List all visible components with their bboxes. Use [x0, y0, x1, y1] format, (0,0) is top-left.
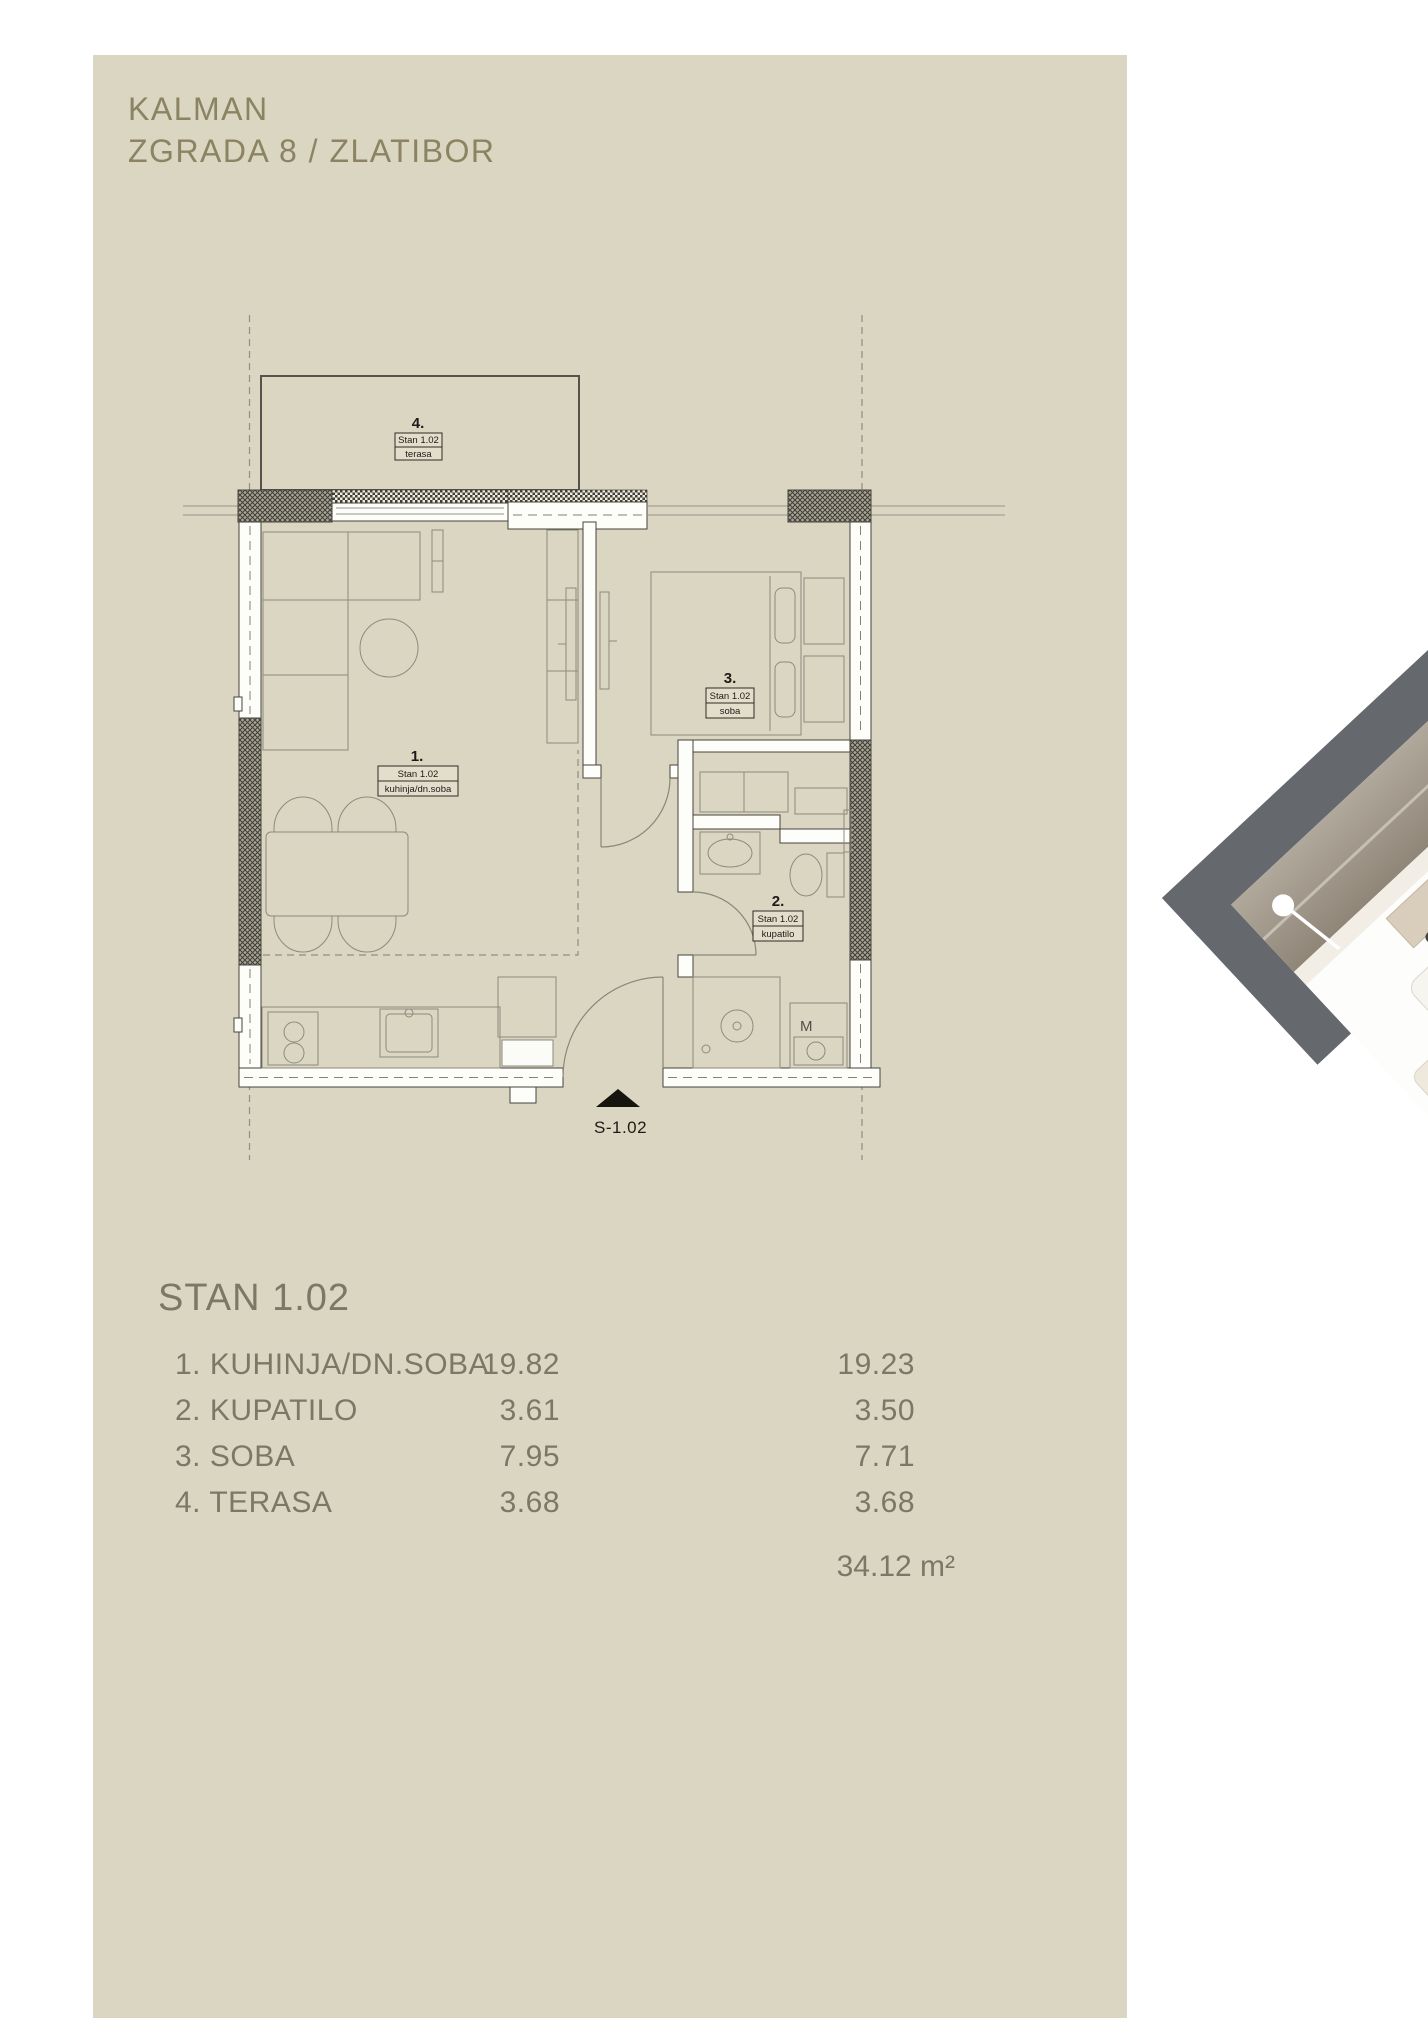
row-area-net: 7.95	[420, 1440, 560, 1474]
right-wall	[850, 522, 871, 1069]
room-label-kuhinja: 1. Stan 1.02 kuhinja/dn.soba	[378, 748, 458, 796]
room-4-unit: Stan 1.02	[398, 435, 439, 446]
room-4-name: terasa	[405, 449, 432, 460]
radiator-top	[432, 530, 443, 592]
row-label: 2. KUPATILO	[175, 1394, 358, 1428]
room-4-number: 4.	[412, 415, 425, 432]
row-area-gross: 7.71	[775, 1440, 915, 1474]
bottom-wall	[239, 977, 880, 1103]
toilet	[790, 853, 844, 897]
interior-walls	[583, 522, 850, 977]
wardrobe	[547, 530, 578, 743]
entrance-label: S-1.02	[594, 1118, 647, 1137]
nightstands	[804, 578, 844, 722]
row-label: 3. SOBA	[175, 1440, 295, 1474]
kitchen-counter	[262, 977, 556, 1068]
shower	[693, 977, 780, 1068]
floor-plan: M 1. Stan 1.02 kuhinja/dn.soba 2. Stan 1…	[0, 0, 1428, 2018]
page: KALMAN ZGRADA 8 / ZLATIBOR	[0, 0, 1428, 2018]
room-1-name: kuhinja/dn.soba	[385, 784, 452, 795]
top-wall	[238, 490, 871, 529]
total-area: 34.12 m²	[720, 1550, 955, 1584]
room-2-number: 2.	[772, 893, 785, 910]
row-label: 4. TERASA	[175, 1486, 332, 1520]
row-area-net: 3.61	[420, 1394, 560, 1428]
room-3-unit: Stan 1.02	[710, 691, 751, 702]
entrance-marker: S-1.02	[594, 1089, 647, 1137]
room-label-soba: 3. Stan 1.02 soba	[706, 670, 754, 718]
row-area-net: 19.82	[420, 1348, 560, 1382]
sofa	[263, 532, 420, 750]
bathroom-sink	[700, 832, 760, 874]
summary-title: STAN 1.02	[158, 1277, 350, 1320]
entrance-arrow-icon	[596, 1089, 640, 1107]
room-2-unit: Stan 1.02	[758, 914, 799, 925]
closet-niche	[700, 772, 847, 814]
row-area-gross: 19.23	[775, 1348, 915, 1382]
room-label-terasa: 4. Stan 1.02 terasa	[395, 415, 442, 460]
render-3d	[1162, 573, 1428, 1228]
dining-set	[266, 797, 408, 952]
row-area-net: 3.68	[420, 1486, 560, 1520]
room-1-number: 1.	[411, 748, 424, 765]
room-3-name: soba	[720, 706, 741, 717]
row-area-gross: 3.68	[775, 1486, 915, 1520]
room-3-number: 3.	[724, 670, 737, 687]
room-label-kupatilo: 2. Stan 1.02 kupatilo	[753, 893, 803, 941]
room-1-unit: Stan 1.02	[398, 769, 439, 780]
coffee-table	[360, 619, 418, 677]
room-2-name: kupatilo	[762, 929, 795, 940]
row-area-gross: 3.50	[775, 1394, 915, 1428]
left-wall	[234, 522, 261, 1068]
washing-machine: M	[790, 1003, 847, 1068]
washer-label: M	[800, 1018, 813, 1035]
